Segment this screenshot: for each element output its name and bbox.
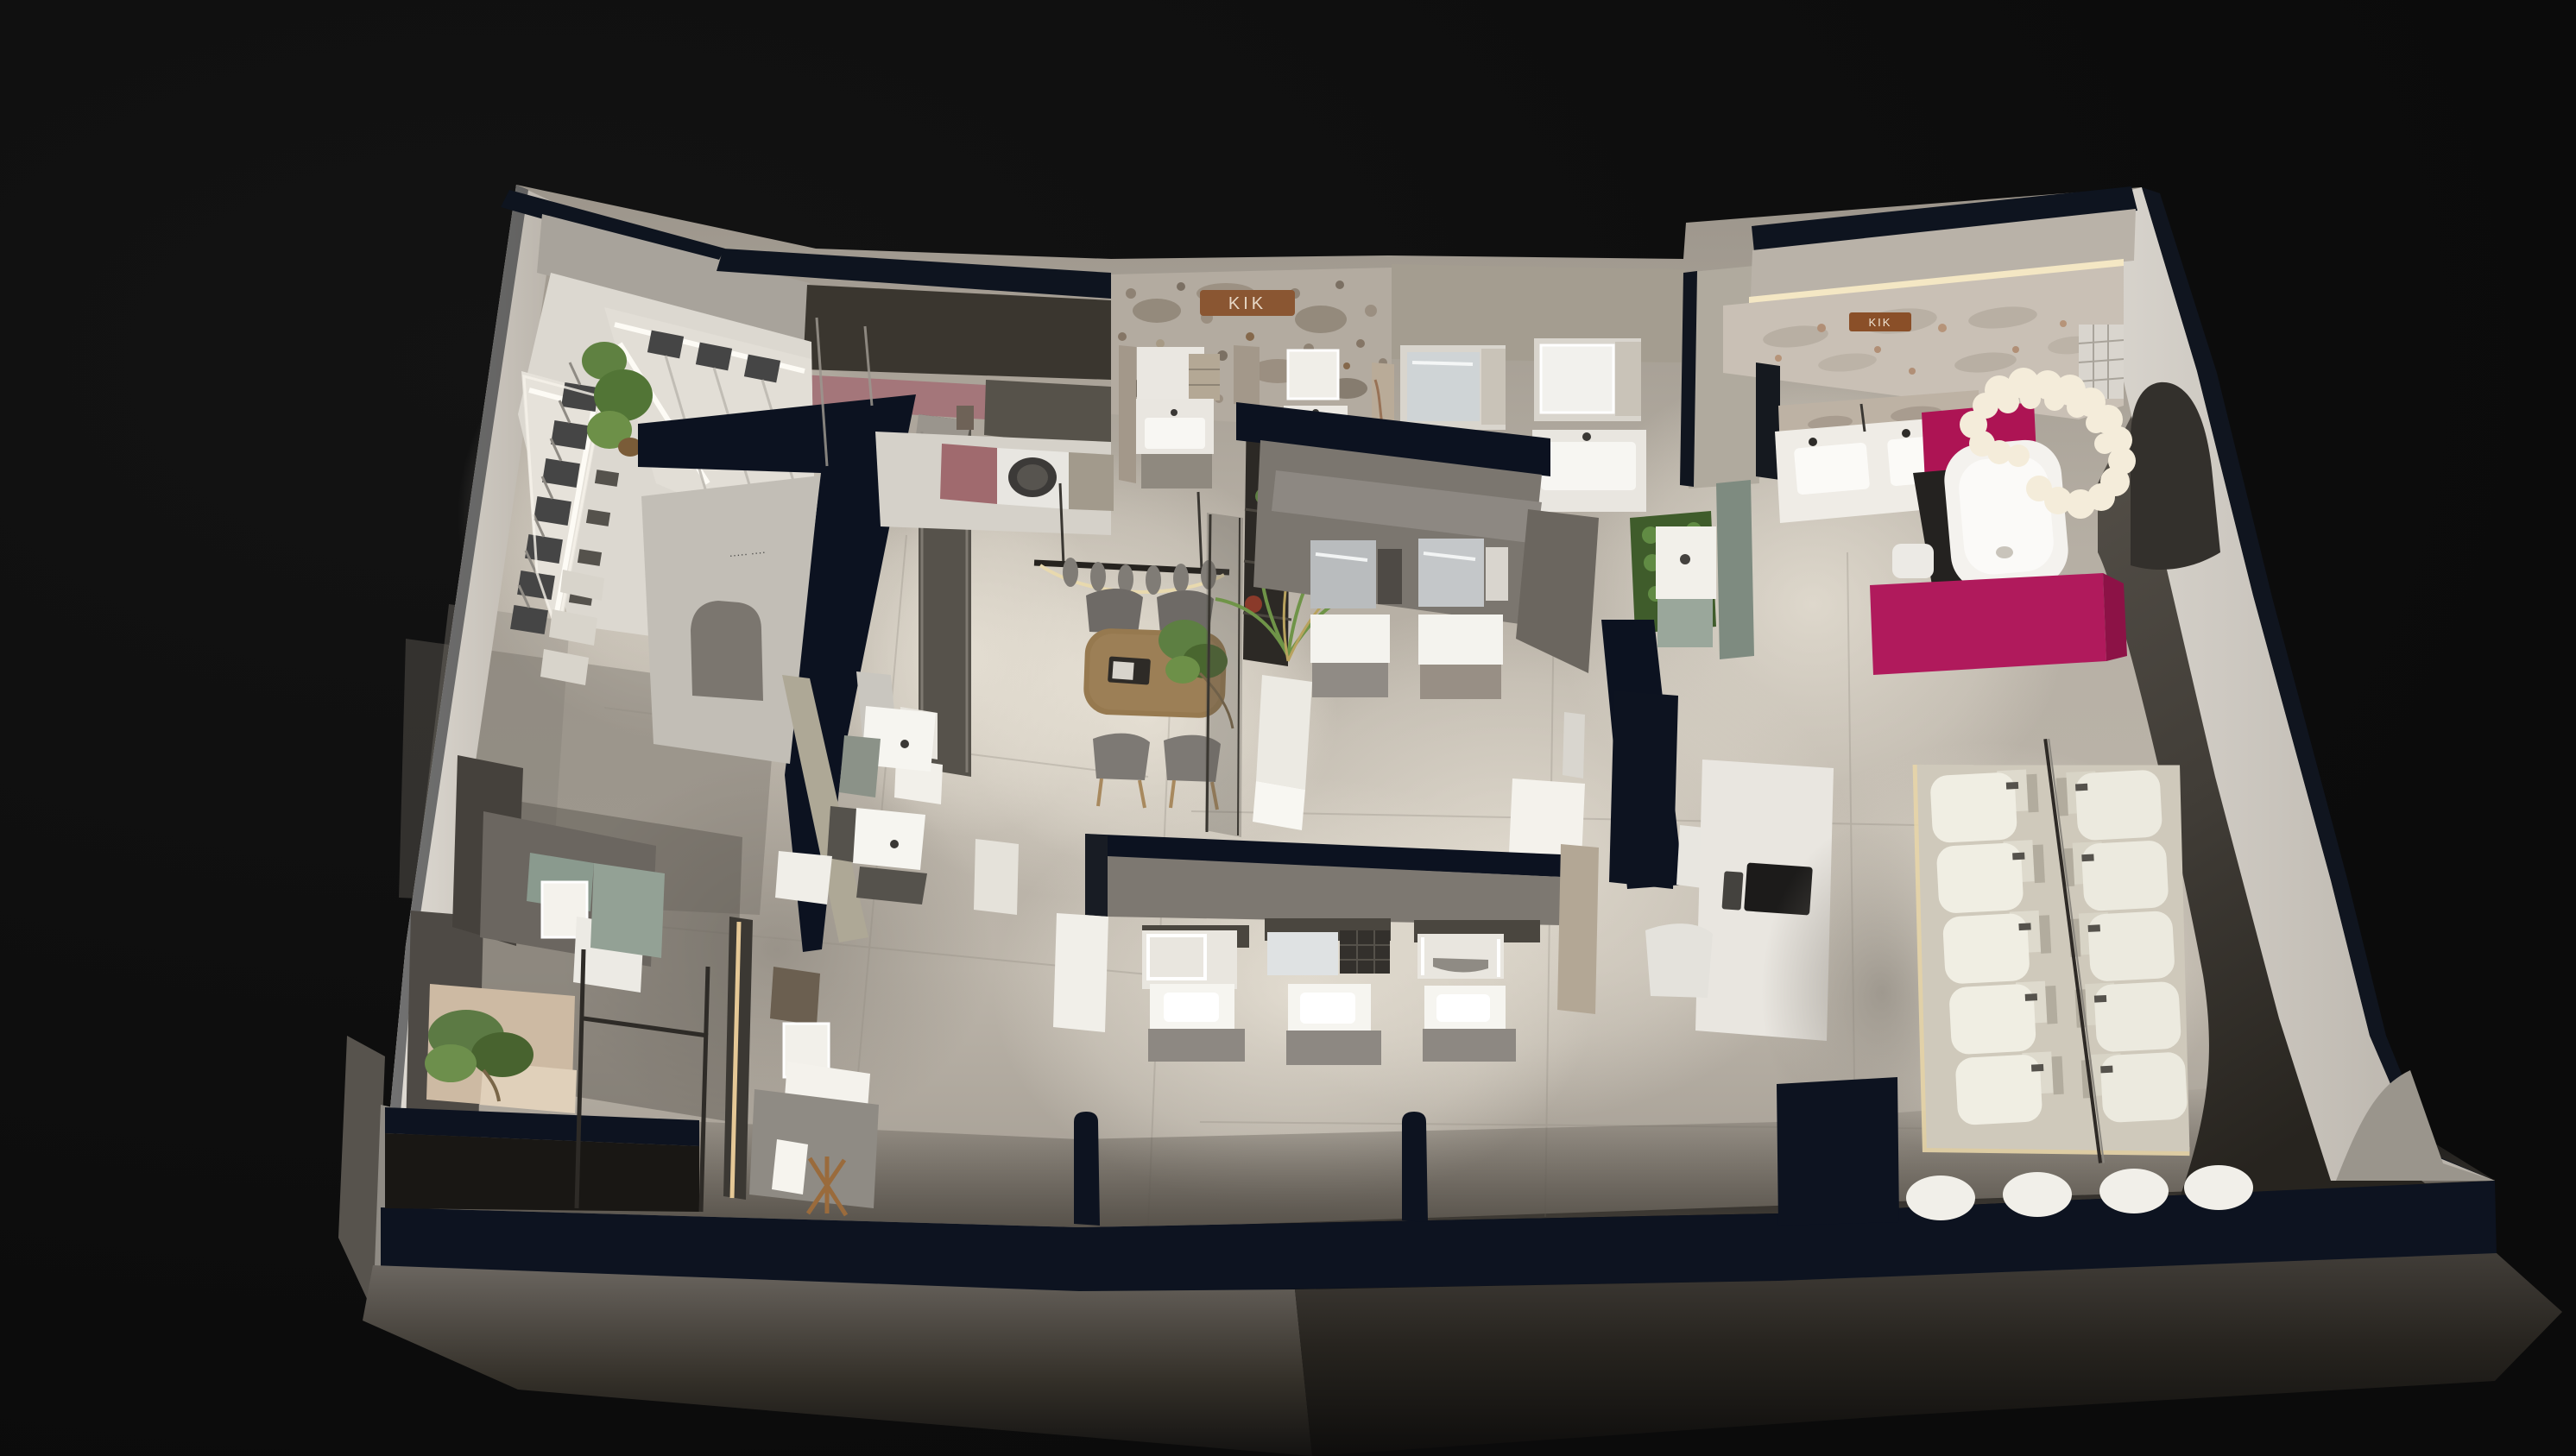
svg-text:KIK: KIK xyxy=(1228,294,1266,313)
svg-text:KIK: KIK xyxy=(1869,316,1892,329)
